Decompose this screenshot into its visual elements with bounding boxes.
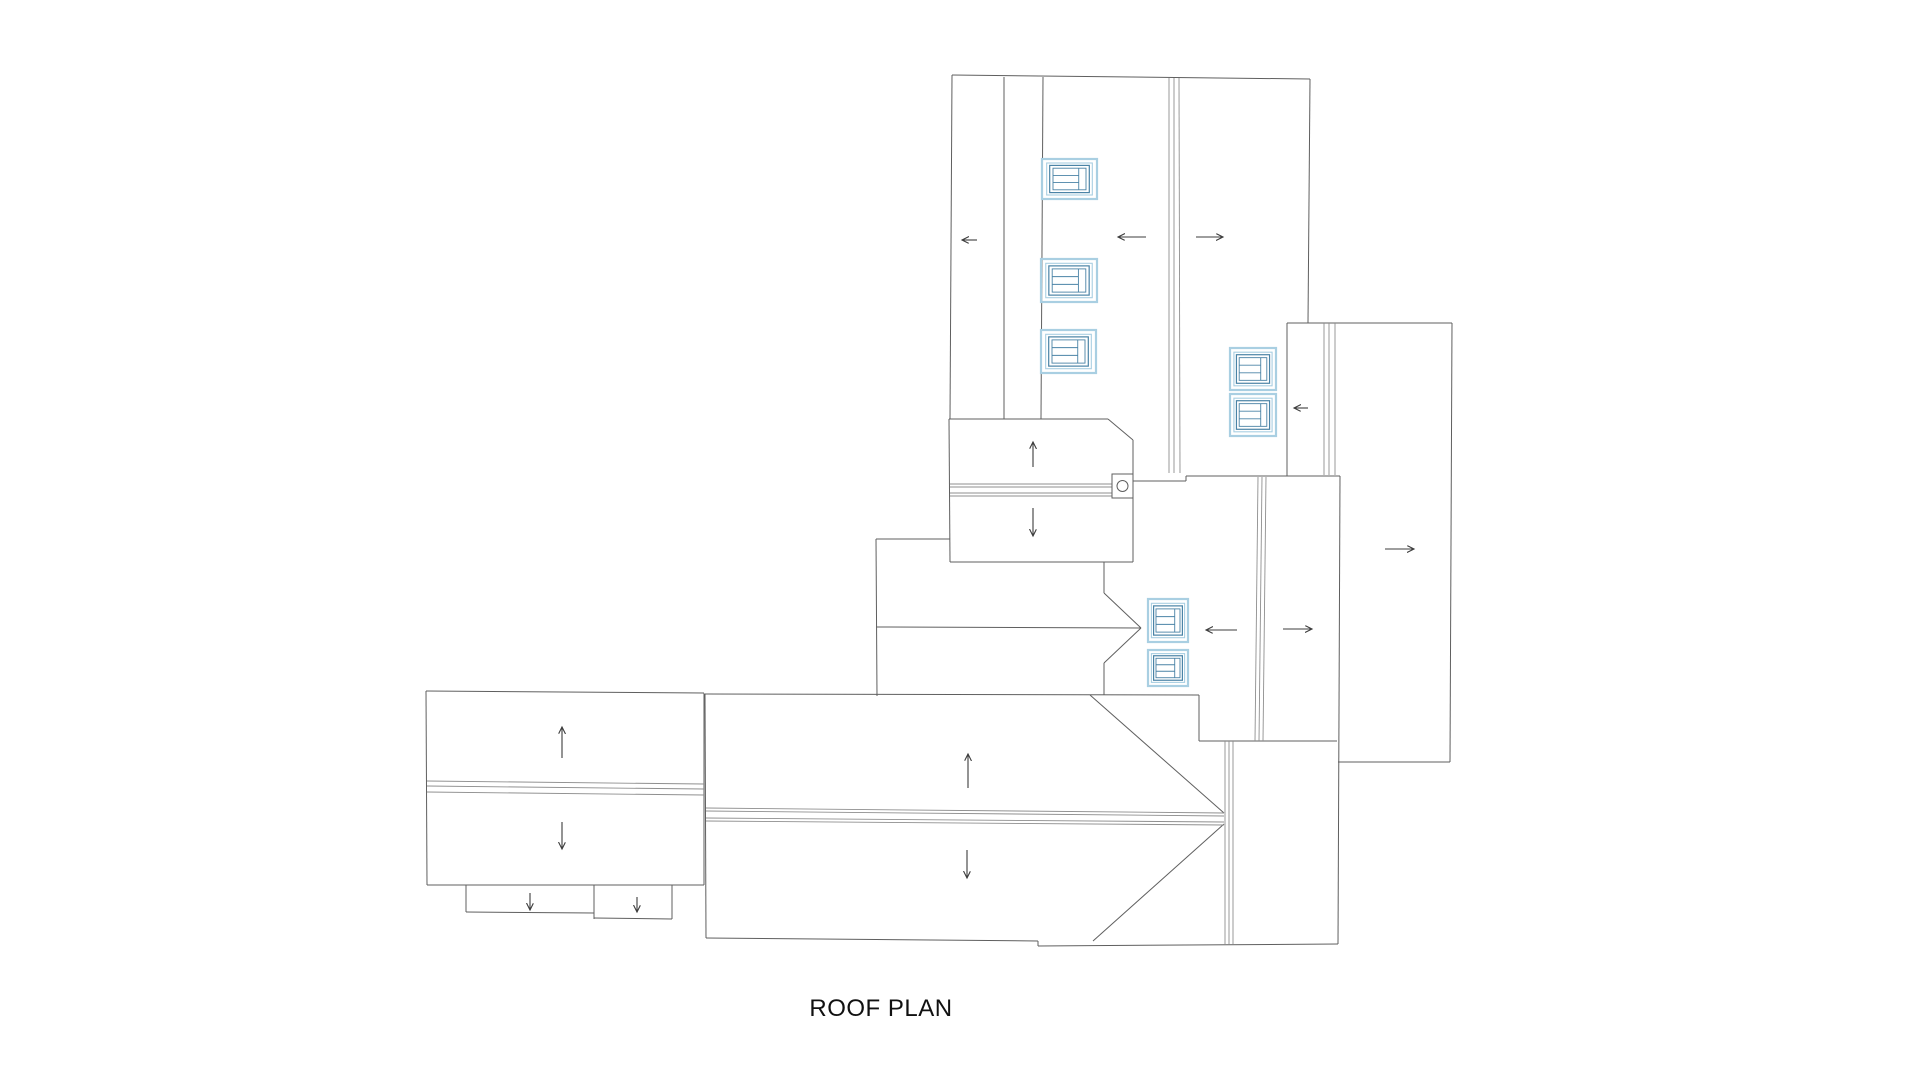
roof-edge-line [949,419,950,562]
skylight [1041,259,1097,302]
roof-edge-line [1104,593,1141,628]
roof-edge-line [1093,824,1224,941]
roof-edge-line [1450,323,1452,762]
drawing-title: ROOF PLAN [786,995,976,1023]
skylights-layer [1041,159,1276,686]
roof-edge-line [1038,944,1338,946]
page-background: ROOF PLAN [0,0,1920,1080]
skylight-frame [1154,606,1183,635]
ridge-line [1255,477,1258,741]
skylight [1042,159,1097,199]
skylight [1041,330,1096,373]
skylight-frame [1050,165,1090,192]
ridge-line [427,792,704,795]
skylight [1230,348,1276,390]
ridge-line [706,811,1224,816]
roof-plan-drawing [0,0,1920,1080]
skylight-frame [1239,358,1267,381]
skylight-frame [1236,401,1269,430]
roof-edge-line [950,75,952,419]
roof-edge-line [1338,476,1340,944]
skylight [1148,599,1188,642]
ridge-line [706,808,1224,813]
skylight-frame [1052,269,1086,292]
roof-edge-line [706,938,1038,941]
ridge-line [1263,477,1266,741]
skylight-frame [1049,337,1089,366]
roof-edge-line [426,691,704,693]
skylight-frame [1156,609,1180,632]
roof-edge-line [876,627,1141,628]
roof-edge-line [1308,79,1310,323]
ridge-line [427,786,704,789]
chimney-detail-square [1112,474,1133,498]
roof-edge-line [466,912,594,913]
skylight [1148,650,1188,686]
skylight-frame [1154,656,1183,680]
roof-edge-line [876,539,877,696]
skylight [1230,394,1276,436]
roof-edge-line [1090,695,1224,813]
roof-edge-line [952,75,1310,79]
roof-edge-line [594,918,672,919]
roof-lines-layer [426,75,1452,946]
roof-edge-line [1108,419,1133,440]
ridge-line [1259,477,1262,741]
skylight-frame [1052,340,1085,363]
roof-edge-line [1104,628,1141,663]
ridge-line [427,781,704,784]
skylight-frame [1236,355,1269,384]
skylight-frame [1239,404,1267,427]
roof-edge-line [705,694,1199,695]
ridge-line [1179,78,1180,473]
details-layer [1112,474,1133,498]
roof-edge-line [705,694,706,938]
skylight-frame [1049,266,1089,295]
roof-edge-line [426,691,427,885]
skylight-frame [1053,168,1086,190]
skylight-frame [1156,658,1180,677]
